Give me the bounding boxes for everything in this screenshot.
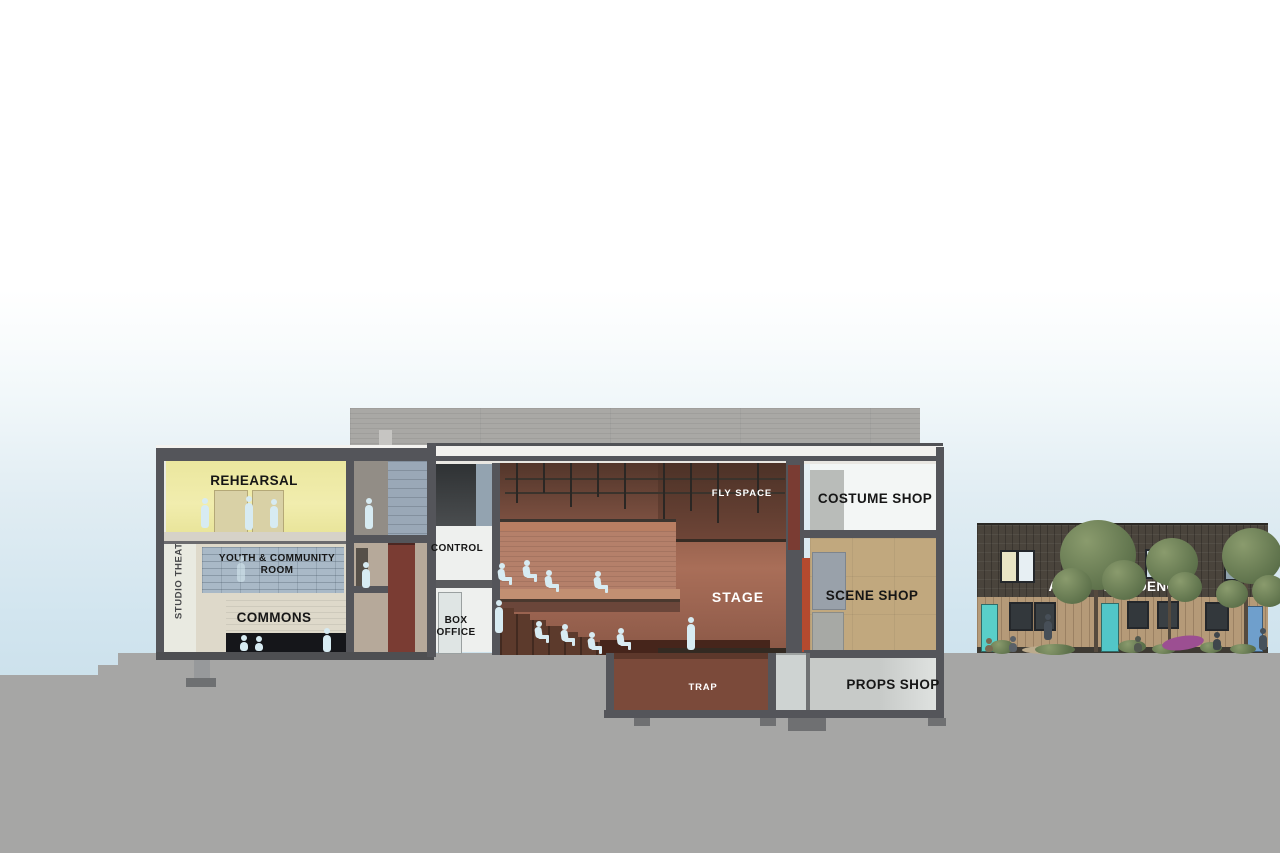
balcony-floor [500,589,680,602]
footing [760,718,776,726]
fly-space-label: FLY SPACE [702,488,782,499]
person-figure [498,563,515,585]
lobby-slab [436,580,492,588]
scene-shop-label: SCENE SHOP [812,588,932,604]
person-figure [236,556,245,582]
floor-slab [164,532,354,541]
stage-label: STAGE [698,589,778,606]
person-figure [200,498,210,528]
batten [570,463,572,507]
person-figure [255,636,263,651]
shrub [1035,644,1075,655]
trap-label: TRAP [663,682,743,693]
circulation-slab [354,535,427,543]
catwalk-line [505,478,785,480]
control-glazing [476,464,492,526]
tree [1102,560,1146,600]
footing [788,718,826,731]
proscenium-panel [788,465,800,550]
person-figure [685,617,696,650]
architectural-section-diagram: STUDIO THEATRE REHEARSAL YOUTH & COMMUNI… [0,0,1280,853]
costume-shop-label: COSTUME SHOP [815,491,935,507]
person-figure [545,570,562,592]
shop-slab [804,530,943,538]
window [1017,550,1035,583]
window [1127,601,1149,629]
theater-right-wall [936,447,944,712]
bridge-slab [354,586,388,593]
balcony-fascia [500,519,676,531]
proscenium-red-strip [802,558,810,652]
batten [516,463,518,503]
batten [690,463,692,511]
left-block-roof-band [156,448,434,461]
props-shop-label: PROPS SHOP [833,677,953,693]
person-figure [269,499,279,528]
circulation-glazing [388,461,427,535]
person-figure [1008,636,1018,652]
person-figure [243,496,254,530]
circulation-left-wall [346,448,354,655]
person-figure [1212,632,1222,650]
person-figure [1133,636,1142,652]
commons-label: COMMONS [214,610,334,626]
shop-ground-slab [804,650,943,658]
person-figure [588,632,605,654]
youth-community-label: YOUTH & COMMUNITY ROOM [217,553,337,577]
person-figure [240,635,248,651]
tree [1216,580,1248,608]
person-figure [1043,614,1053,640]
person-figure [523,560,540,582]
person-figure [1258,628,1268,650]
person-figure [617,628,634,650]
batten [663,463,665,521]
elevator-shaft [388,543,415,654]
basement-bottom-slab [604,710,944,718]
theater-roof [427,446,943,456]
control-label: CONTROL [427,543,487,555]
footing [928,718,946,726]
person-figure [561,624,578,646]
person-figure [361,562,371,588]
column [194,660,210,678]
door [252,490,284,534]
person-figure [535,621,552,643]
batten [543,463,545,493]
rehearsal-label: REHEARSAL [194,473,314,489]
person-figure [322,628,332,652]
trap-right-wall [768,653,776,712]
shrub [1230,644,1256,654]
footing [634,718,650,726]
person-figure [364,498,374,529]
stage-fly-grid [658,463,790,542]
box-office-label: BOX OFFICE [430,615,482,639]
person-figure [594,571,611,593]
under-balcony [500,602,680,612]
batten [597,463,599,497]
window [1000,550,1018,583]
batten [624,463,626,509]
fly-tower-mass [350,408,920,448]
basement-wall [606,653,614,712]
tree [1168,572,1202,602]
door-teal [1101,603,1119,652]
left-block-floor-slab [156,652,434,660]
footing [186,678,216,687]
person-figure [984,638,993,652]
tree [1052,568,1092,604]
window [1009,602,1033,631]
scene-shop-panel [812,612,844,652]
basement-corridor [776,653,810,714]
person-figure [493,600,504,633]
tree [1252,575,1280,607]
